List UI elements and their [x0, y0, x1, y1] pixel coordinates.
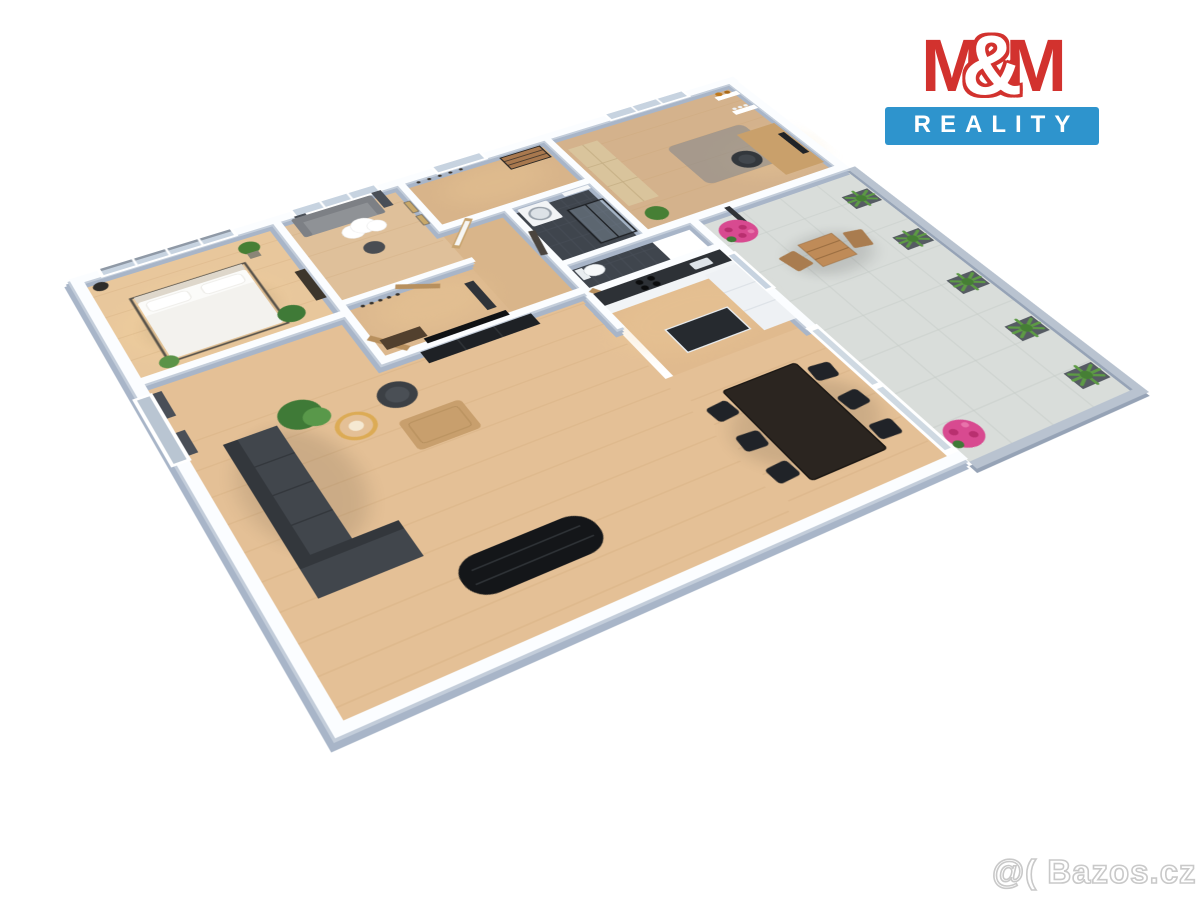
logo-mm-text: M & M [885, 28, 1099, 104]
logo-ampersand: & [962, 26, 1023, 106]
bazos-watermark: @( Bazos.cz [992, 853, 1197, 891]
logo-reality-bar: REALITY [885, 107, 1099, 145]
mm-reality-logo: M & M REALITY [885, 28, 1099, 145]
floorplan-svg [56, 71, 1159, 766]
kids-room-door [395, 284, 440, 290]
floorplan [56, 71, 1159, 766]
floorplan-listing-image: M & M REALITY @( Bazos.cz [0, 0, 1200, 900]
